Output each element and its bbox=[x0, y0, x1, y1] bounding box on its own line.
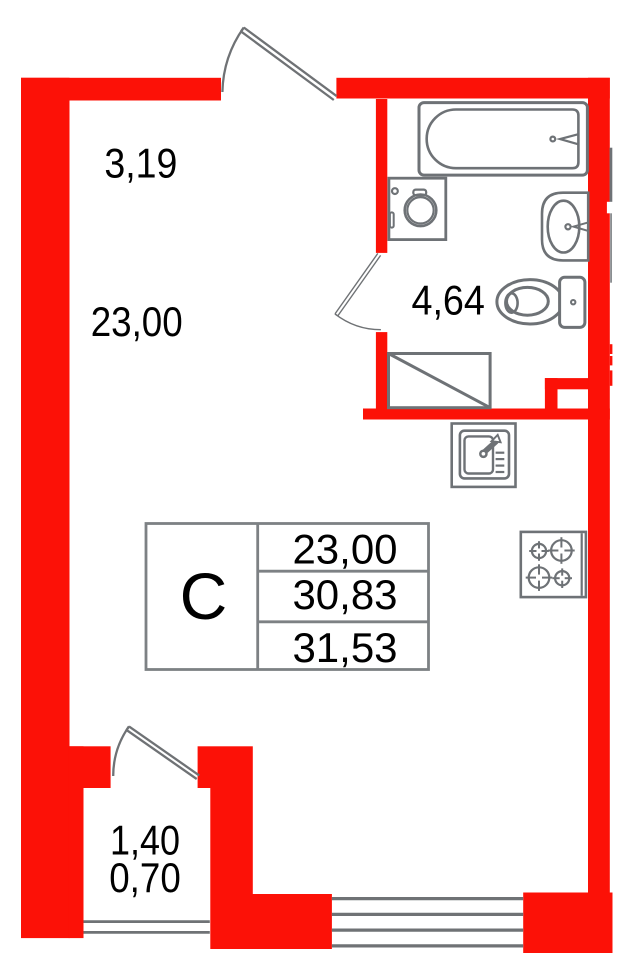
svg-text:4,64: 4,64 bbox=[411, 277, 485, 324]
svg-text:3,19: 3,19 bbox=[104, 140, 177, 187]
svg-text:0,70: 0,70 bbox=[109, 854, 181, 901]
svg-text:С: С bbox=[180, 559, 228, 633]
svg-text:23,00: 23,00 bbox=[91, 298, 183, 345]
svg-text:23,00: 23,00 bbox=[292, 525, 397, 572]
svg-text:30,83: 30,83 bbox=[292, 571, 397, 618]
svg-text:31,53: 31,53 bbox=[292, 624, 397, 671]
